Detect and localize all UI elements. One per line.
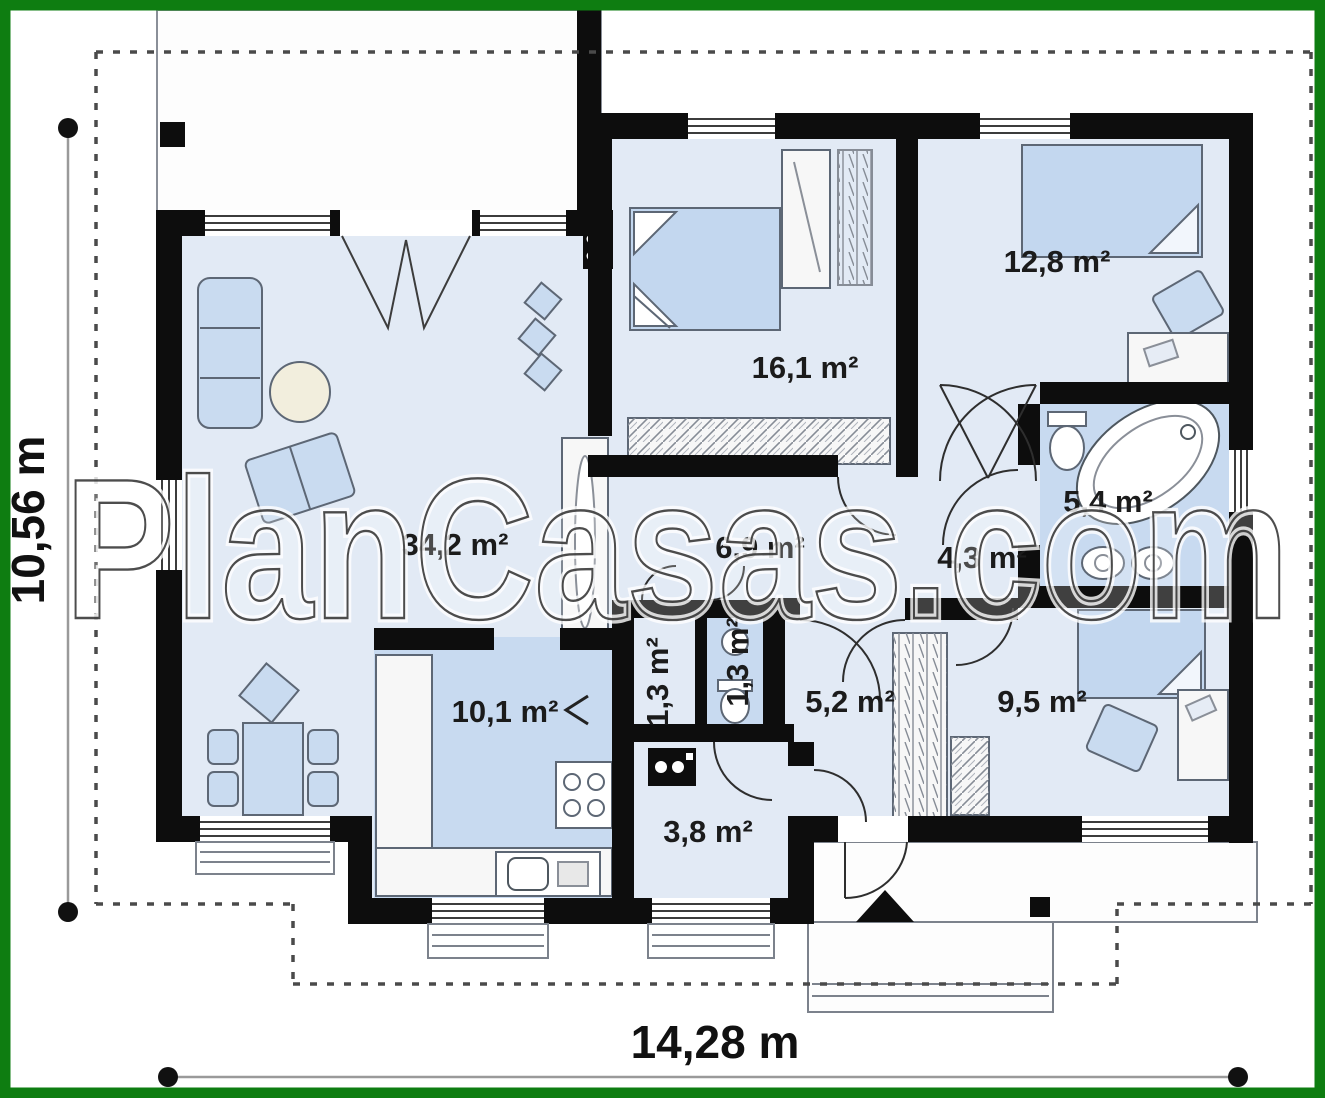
- porch-steps: [808, 922, 1053, 1012]
- coffee-table: [270, 362, 330, 422]
- width-dimension-label: 14,28 m: [631, 1016, 800, 1068]
- watermark: PlanCasas.com PlanCasas.com: [65, 438, 1290, 661]
- entrance-porch: [808, 842, 1257, 1012]
- room-label-bedroom-main: 16,1 m²: [752, 350, 859, 385]
- dimension-width: 14,28 m: [158, 1016, 1248, 1087]
- dining-table: [243, 723, 303, 815]
- floor-plan-svg: 10,56 m 14,28 m 34,2 m² 16,1 m² 12,8 m² …: [0, 0, 1325, 1098]
- room-label-entry-hall: 5,2 m²: [805, 684, 895, 719]
- chair: [308, 730, 338, 764]
- stove: [556, 762, 612, 828]
- room-label-pantry: 3,8 m²: [663, 814, 753, 849]
- terrace: [157, 10, 601, 212]
- kitchen-sink: [508, 858, 548, 890]
- porch-post: [1030, 897, 1050, 917]
- room-label-bedroom-small: 9,5 m²: [997, 684, 1087, 719]
- room-label-kitchen: 10,1 m²: [452, 694, 559, 729]
- mirror-stand: [782, 150, 830, 288]
- watermark-text: PlanCasas.com: [65, 438, 1290, 661]
- terrace-door-opening: [340, 210, 472, 236]
- terrace-post: [160, 122, 185, 147]
- floor-plan-page: 10,56 m 14,28 m 34,2 m² 16,1 m² 12,8 m² …: [0, 0, 1325, 1098]
- chair: [208, 730, 238, 764]
- radiator: [838, 150, 872, 285]
- chair: [308, 772, 338, 806]
- room-label-bedroom-right: 12,8 m²: [1004, 244, 1111, 279]
- desk-right: [1128, 333, 1228, 389]
- entrance-door-opening: [838, 816, 908, 842]
- chair: [208, 772, 238, 806]
- sofa: [198, 278, 262, 428]
- toilet-tank: [1048, 412, 1086, 426]
